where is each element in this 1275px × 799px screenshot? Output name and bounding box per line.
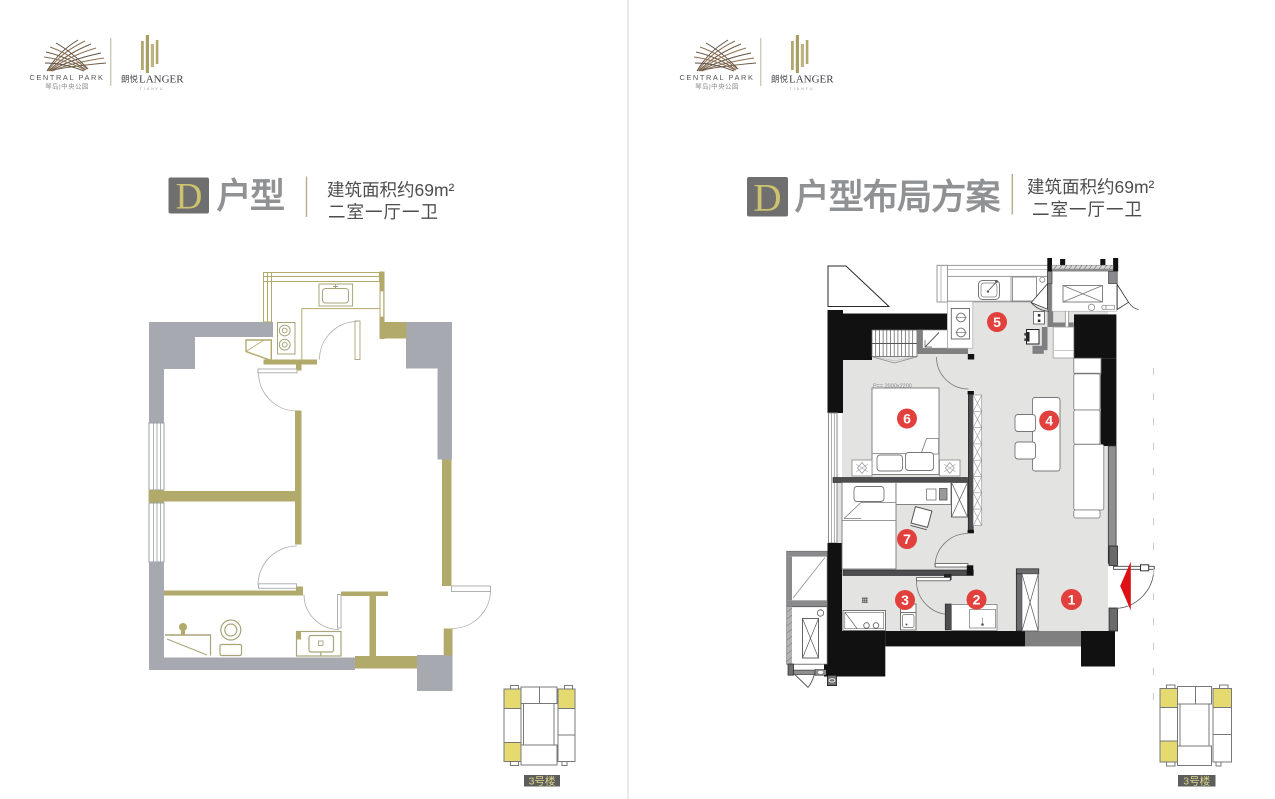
svg-text:LANGER: LANGER	[789, 74, 834, 86]
svg-text:1: 1	[1068, 592, 1076, 608]
svg-text:4: 4	[1045, 413, 1053, 429]
svg-text:5: 5	[993, 314, 1001, 330]
svg-text:琴岛|中央公园: 琴岛|中央公园	[695, 82, 739, 91]
svg-text:D: D	[176, 177, 203, 218]
svg-text:二室一厅一卫: 二室一厅一卫	[328, 202, 439, 222]
svg-text:2: 2	[973, 592, 981, 608]
svg-text:TIANFU: TIANFU	[140, 87, 165, 91]
svg-text:D: D	[753, 177, 781, 220]
svg-text:LANGER: LANGER	[139, 74, 184, 86]
svg-text:CENTRAL PARK: CENTRAL PARK	[29, 73, 104, 82]
svg-text:琴岛|中央公园: 琴岛|中央公园	[45, 82, 89, 91]
svg-text:建筑面积约69m²: 建筑面积约69m²	[1027, 177, 1155, 197]
svg-text:朗悦: 朗悦	[771, 74, 789, 84]
svg-text:TIANFU: TIANFU	[790, 87, 815, 91]
svg-text:7: 7	[903, 531, 911, 547]
svg-text:3号楼: 3号楼	[1183, 775, 1210, 788]
svg-text:P== 2000x2200: P== 2000x2200	[873, 384, 912, 390]
svg-text:户型布局方案: 户型布局方案	[795, 178, 1002, 217]
svg-text:6: 6	[903, 411, 911, 427]
svg-text:3: 3	[901, 592, 909, 608]
svg-text:户型: 户型	[217, 177, 285, 216]
svg-text:建筑面积约69m²: 建筑面积约69m²	[327, 180, 455, 200]
svg-text:朗悦: 朗悦	[121, 74, 139, 84]
svg-text:CENTRAL PARK: CENTRAL PARK	[679, 73, 754, 82]
svg-text:3号楼: 3号楼	[529, 775, 556, 788]
svg-text:二室一厅一卫: 二室一厅一卫	[1032, 200, 1143, 220]
